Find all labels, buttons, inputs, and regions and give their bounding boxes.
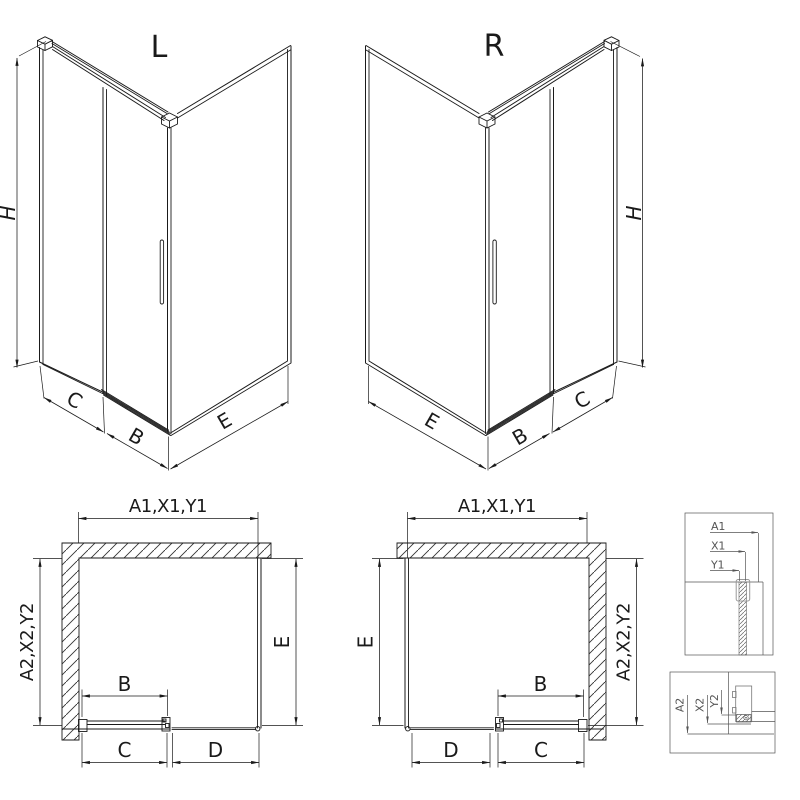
dim-label-h-left: H xyxy=(0,205,20,220)
wall-bracket xyxy=(579,720,588,732)
detail-label-x2: X2 xyxy=(694,698,707,712)
left-door-wall xyxy=(38,37,178,436)
door-handle xyxy=(493,240,496,304)
dim-label-door: B xyxy=(534,672,548,696)
iso-right-dimensions: H E B C xyxy=(369,42,647,471)
rail-end-cap xyxy=(38,37,53,51)
detail-label-a1: A1 xyxy=(711,520,725,533)
dim-label-h-right: H xyxy=(622,205,646,220)
sliding-door xyxy=(493,88,554,396)
dim-label-depth: A2,X2,Y2 xyxy=(614,603,635,681)
right-door-wall xyxy=(479,37,619,436)
dim-label-door: B xyxy=(118,672,132,696)
view-title-right: R xyxy=(484,29,505,64)
dim-label-fixed: D xyxy=(443,738,458,762)
dim-label-c-right: C xyxy=(570,386,594,414)
detail-label-y2: Y2 xyxy=(708,694,721,708)
dim-label-e-panel: E xyxy=(270,636,294,649)
drawing-svg: L xyxy=(0,0,800,800)
building-walls xyxy=(397,543,606,740)
dim-label-e-left: E xyxy=(213,407,236,434)
dim-label-travel: C xyxy=(534,738,548,762)
wall-profile-detail-bottom: A2 X2 Y2 xyxy=(670,672,775,753)
iso-view-left: L xyxy=(0,30,291,471)
dim-label-fixed: D xyxy=(208,738,223,762)
sliding-door xyxy=(103,88,164,396)
dim-label-e-panel: E xyxy=(354,636,378,649)
wall-bracket xyxy=(79,720,88,732)
detail-label-y1: Y1 xyxy=(710,559,724,572)
fixed-panel xyxy=(172,728,256,730)
dim-label-travel: C xyxy=(118,738,132,762)
fixed-panel xyxy=(410,728,494,730)
dim-label-depth: A2,X2,Y2 xyxy=(17,603,38,681)
detail-label-x1: X1 xyxy=(711,540,725,553)
dim-label-e-right: E xyxy=(421,407,444,434)
rail-end-cap xyxy=(604,37,619,51)
left-side-panel xyxy=(366,46,487,436)
iso-view-right: R xyxy=(366,29,647,471)
door-assembly xyxy=(406,718,604,732)
guide-roller xyxy=(406,727,410,731)
detail-label-a2: A2 xyxy=(674,698,687,712)
dim-label-width: A1,X1,Y1 xyxy=(129,496,207,517)
plan-view-right: A1,X1,Y1 E A2,X2,Y2 B D C xyxy=(354,496,644,768)
wall-profile-detail-top: A1 X1 Y1 xyxy=(685,513,773,655)
shower-enclosure-technical-drawing: L xyxy=(0,0,800,800)
plan-view-left: A1,X1,Y1 A2,X2,Y2 E B C D xyxy=(17,496,303,768)
right-side-panel xyxy=(171,46,292,436)
building-walls xyxy=(62,543,271,740)
dim-label-c-left: C xyxy=(62,386,86,414)
plan-left-dimensions: A1,X1,Y1 A2,X2,Y2 E B C D xyxy=(17,496,303,768)
door-assembly xyxy=(62,718,260,732)
door-handle xyxy=(160,240,163,304)
dim-label-width: A1,X1,Y1 xyxy=(458,496,536,517)
view-title-left: L xyxy=(151,30,168,65)
